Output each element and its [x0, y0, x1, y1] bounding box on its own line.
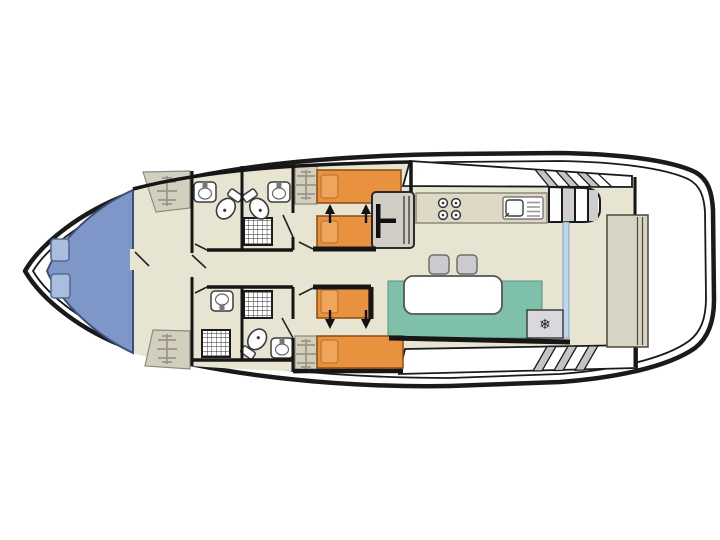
helm-console: [372, 192, 414, 248]
bow-hatch: [51, 239, 69, 261]
wardrobe: [295, 336, 317, 373]
shower: [202, 330, 230, 357]
companionway-stairs: [549, 187, 600, 222]
pillow: [321, 221, 338, 243]
sink: [194, 182, 216, 202]
floor-plan-canvas: ❄: [0, 0, 720, 540]
sink: [211, 291, 233, 311]
shower: [244, 218, 272, 245]
glass-partition-door: [563, 222, 569, 338]
bed: [317, 286, 369, 318]
sink: [271, 338, 293, 358]
pillow: [321, 175, 338, 198]
aft-transom-bench: [607, 215, 648, 347]
fridge: ❄: [527, 310, 563, 338]
pillow: [321, 340, 338, 363]
side-deck-starboard: [399, 345, 637, 374]
dinette-table: [404, 276, 502, 314]
boat-floor-plan: ❄: [0, 0, 720, 540]
wardrobe: [145, 330, 190, 369]
galley-sink: [503, 197, 543, 219]
snowflake-icon: ❄: [539, 317, 551, 333]
sink: [268, 182, 290, 202]
wardrobe: [295, 166, 317, 204]
bow-hatch: [51, 274, 70, 298]
bed: [317, 336, 403, 368]
stool: [429, 255, 449, 274]
pillow: [321, 290, 338, 313]
stool: [457, 255, 477, 274]
shower: [244, 291, 272, 318]
